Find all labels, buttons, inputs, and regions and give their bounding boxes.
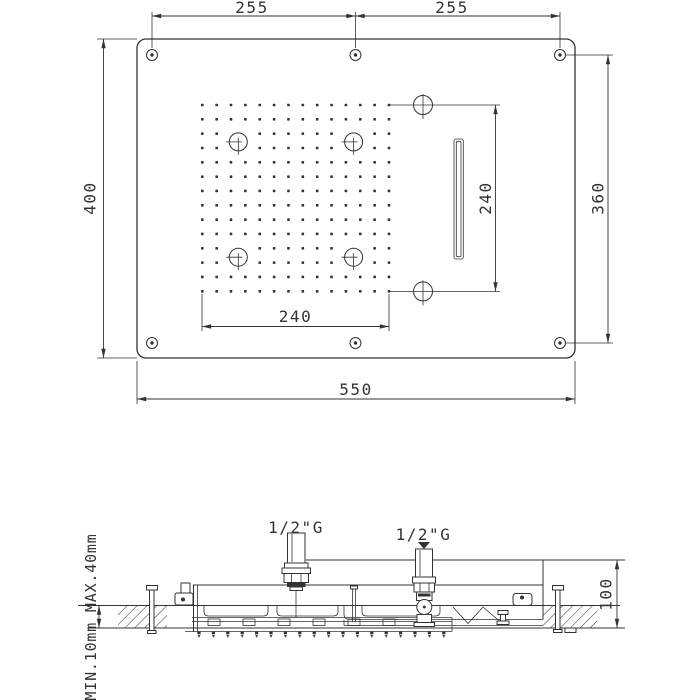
spray-dot [201,104,204,107]
spray-dot [215,190,218,193]
jet-holes [226,133,362,270]
spray-dot [244,118,247,121]
spray-dot [359,118,362,121]
spray-dot [373,290,376,293]
spray-dot [316,247,319,250]
spray-dot [273,132,276,135]
spray-dot [302,290,305,293]
nozzle-tip [370,635,373,638]
spray-dot [316,161,319,164]
spray-dot [215,175,218,178]
spray-dot [330,147,333,150]
spray-dot [230,118,233,121]
spray-dot [345,276,348,279]
spray-dot [258,233,261,236]
spray-dot [273,261,276,264]
spray-dot [215,118,218,121]
spray-dot [258,147,261,150]
spray-dot [316,175,319,178]
nozzle-tip [414,635,417,638]
spray-dot [287,132,290,135]
spray-dot [316,147,319,150]
suspension-rods [147,586,564,634]
spray-dot [273,247,276,250]
spray-dot [215,104,218,107]
spray-dot [201,175,204,178]
nozzle-tip [356,635,359,638]
nozzle-tip [298,635,301,638]
spray-dot [273,276,276,279]
spray-dot [359,218,362,221]
inlet-left-label: 1/2"G [268,518,324,537]
spray-dot [258,161,261,164]
spray-dot [201,147,204,150]
spray-dot [287,233,290,236]
spray-dot [373,247,376,250]
spray-dot [287,161,290,164]
screw-hole [350,50,361,61]
spray-dot [330,233,333,236]
spray-dot-grid [201,104,390,293]
spray-dot [373,147,376,150]
screw-hole [147,50,158,61]
spray-dot [316,261,319,264]
nozzle [212,632,215,635]
nozzle-tip [313,635,316,638]
jet-hole [342,133,363,155]
nozzle-tip [399,635,402,638]
screw-hole [555,50,566,61]
spray-dot [201,290,204,293]
spray-dot [359,175,362,178]
nozzle-tip [212,635,215,638]
spray-dot [215,247,218,250]
nozzle-tip [241,635,244,638]
spray-dot [388,276,391,279]
spray-dot [244,161,247,164]
spray-dot [258,104,261,107]
spray-dot [230,161,233,164]
nozzle-tip [198,635,201,638]
spray-dot [388,233,391,236]
dim-panel-width: 550 [339,380,372,399]
spray-dot [345,175,348,178]
section-view: MIN.10mm MAX.40mm 100 1/2"G 1/2"G [78,518,625,700]
spray-dot [316,233,319,236]
spray-dot [258,247,261,250]
nozzle-tip [226,635,229,638]
spray-dot [316,190,319,193]
spray-dot [345,161,348,164]
spray-dot [345,104,348,107]
nozzle-tip [342,635,345,638]
spray-dot [230,218,233,221]
spray-dot [273,190,276,193]
spray-dot [388,161,391,164]
spray-dot [302,190,305,193]
spray-dot [244,218,247,221]
nozzle [284,632,287,635]
spray-dot [215,218,218,221]
nozzle [197,632,200,635]
spray-dot [244,276,247,279]
spray-dot [215,132,218,135]
spray-dot [230,175,233,178]
spray-dot [258,218,261,221]
nozzle-tip [442,635,445,638]
spray-dot [316,132,319,135]
spray-dot [215,261,218,264]
spray-dot [388,218,391,221]
nozzle [226,632,229,635]
spray-dot [316,204,319,207]
spray-dot [373,204,376,207]
spray-dot [215,204,218,207]
nozzle [298,632,301,635]
spray-dot [388,247,391,250]
nozzle-tip [428,635,431,638]
nozzle [413,632,416,635]
rain-module [185,606,452,638]
nozzle [428,632,431,635]
spray-dot [302,132,305,135]
spray-dot [287,247,290,250]
spray-dot [201,132,204,135]
spray-dot [287,290,290,293]
spray-dot [273,118,276,121]
spray-dot [330,161,333,164]
spray-dot [359,161,362,164]
spray-dot [244,290,247,293]
spray-dot [316,118,319,121]
nozzle [327,632,330,635]
spray-dot [258,204,261,207]
spray-dot [287,204,290,207]
spray-dot [345,218,348,221]
nozzle-tip [270,635,273,638]
spray-dot [201,204,204,207]
spray-dot [302,147,305,150]
spray-dot [230,290,233,293]
spray-dot [373,233,376,236]
spray-dot [388,175,391,178]
panel-outline [137,39,575,358]
spray-dot [230,104,233,107]
spray-dot [302,276,305,279]
spray-dot [359,204,362,207]
spray-dot [330,118,333,121]
inlet-right-label: 1/2"G [396,525,452,544]
spray-dot [287,190,290,193]
spray-dot [273,161,276,164]
spray-dot [373,276,376,279]
spray-dot [273,233,276,236]
inlet-left [282,533,311,617]
spray-dot [287,175,290,178]
dim-spray-width: 240 [279,307,312,326]
spray-dot [244,175,247,178]
spray-dot [345,190,348,193]
spray-dot [373,118,376,121]
spray-dot [230,204,233,207]
spray-dot [373,261,376,264]
spray-dot [201,233,204,236]
spray-dot [359,233,362,236]
spray-dot [201,161,204,164]
spray-dot [244,104,247,107]
waterfall-slot [454,139,463,259]
nozzle-tip [284,635,287,638]
spray-dot [316,218,319,221]
spray-dot [230,190,233,193]
spray-dot [230,233,233,236]
spray-dot [345,233,348,236]
dim-spray-height: 240 [476,181,495,214]
spray-dot [258,118,261,121]
jet-hole [226,248,247,270]
nozzle [255,632,258,635]
screw-hole [147,338,158,349]
spray-dot [373,175,376,178]
spray-dot [330,175,333,178]
spray-dot [273,204,276,207]
spray-dot [302,233,305,236]
spray-dot [388,190,391,193]
spray-dot [330,132,333,135]
spray-dot [302,161,305,164]
spray-dot [316,290,319,293]
spray-dot [330,276,333,279]
spray-dot [373,190,376,193]
spray-dot [287,118,290,121]
spray-dot [388,204,391,207]
spray-dot [359,190,362,193]
nozzle-tip [255,635,258,638]
jet-hole [342,248,363,270]
spray-dot [373,104,376,107]
nozzle [370,632,373,635]
screw-hole [350,338,361,349]
screw-hole [555,338,566,349]
spray-dot [215,147,218,150]
spray-dot [345,204,348,207]
spray-dot [302,104,305,107]
top-view-plan: 255 255 400 240 360 240 550 [81,0,614,404]
spray-dot [373,218,376,221]
nozzle-tip [327,635,330,638]
spray-dot [302,118,305,121]
dim-hole-pitch-right: 255 [435,0,468,17]
spray-dot [201,218,204,221]
nozzle [341,632,344,635]
spray-dot [302,261,305,264]
spray-dot [359,276,362,279]
ceiling-hatch [118,606,597,629]
spray-dot [287,276,290,279]
nozzle-tip [385,635,388,638]
mounting-screws [147,50,566,349]
spray-dot [201,190,204,193]
spray-dot [330,247,333,250]
spray-dot [244,190,247,193]
nozzle [385,632,388,635]
inlet-right [413,542,436,627]
spray-dot [388,147,391,150]
spray-dot [302,204,305,207]
spray-dot [302,247,305,250]
nozzle-row [197,632,445,638]
spray-dot [258,132,261,135]
spray-dot [388,132,391,135]
spray-dot [201,276,204,279]
nozzle [241,632,244,635]
spray-dot [330,218,333,221]
drawing-svg: 255 255 400 240 360 240 550 [0,0,700,700]
spray-dot [258,175,261,178]
spray-dot [273,175,276,178]
spray-dot [244,233,247,236]
spray-dot [287,261,290,264]
spray-dot [287,104,290,107]
nozzle [269,632,272,635]
spray-dot [201,247,204,250]
dim-recess-depth: 100 [597,577,616,610]
nozzle [399,632,402,635]
spray-dot [258,290,261,293]
spray-dot [273,147,276,150]
spray-dot [302,218,305,221]
spray-dot [330,204,333,207]
nozzle [313,632,316,635]
spray-dot [330,190,333,193]
spray-dot [201,118,204,121]
spray-dot [302,175,305,178]
spray-dot [316,104,319,107]
spray-dot [215,290,218,293]
technical-drawing-canvas: 255 255 400 240 360 240 550 [0,0,700,700]
dim-hole-pitch-left: 255 [235,0,268,17]
spray-dot [244,204,247,207]
nozzle [356,632,359,635]
ceiling-thickness-note: MIN.10mm MAX.40mm [82,533,100,700]
spray-dot [215,276,218,279]
spray-dot [345,118,348,121]
spray-dot [273,218,276,221]
spray-dot [316,276,319,279]
jet-hole [226,133,247,155]
spray-dot [258,261,261,264]
spray-dot [258,190,261,193]
spray-dot [273,104,276,107]
spray-dot [287,218,290,221]
spray-dot [215,233,218,236]
dim-panel-height: 400 [81,181,100,214]
spray-dot [359,104,362,107]
spray-dot [201,261,204,264]
spray-dot [215,161,218,164]
spray-dot [230,276,233,279]
spray-dot [345,290,348,293]
spray-dot [330,104,333,107]
spray-dot [330,290,333,293]
spray-dot [388,118,391,121]
dim-holes-span: 360 [589,181,608,214]
spray-dot [373,132,376,135]
spray-dot [330,261,333,264]
spray-dot [388,261,391,264]
spray-dot [273,290,276,293]
spray-dot [359,290,362,293]
spray-dot [258,276,261,279]
spray-dot [287,147,290,150]
nozzle [442,632,445,635]
spray-dot [373,161,376,164]
